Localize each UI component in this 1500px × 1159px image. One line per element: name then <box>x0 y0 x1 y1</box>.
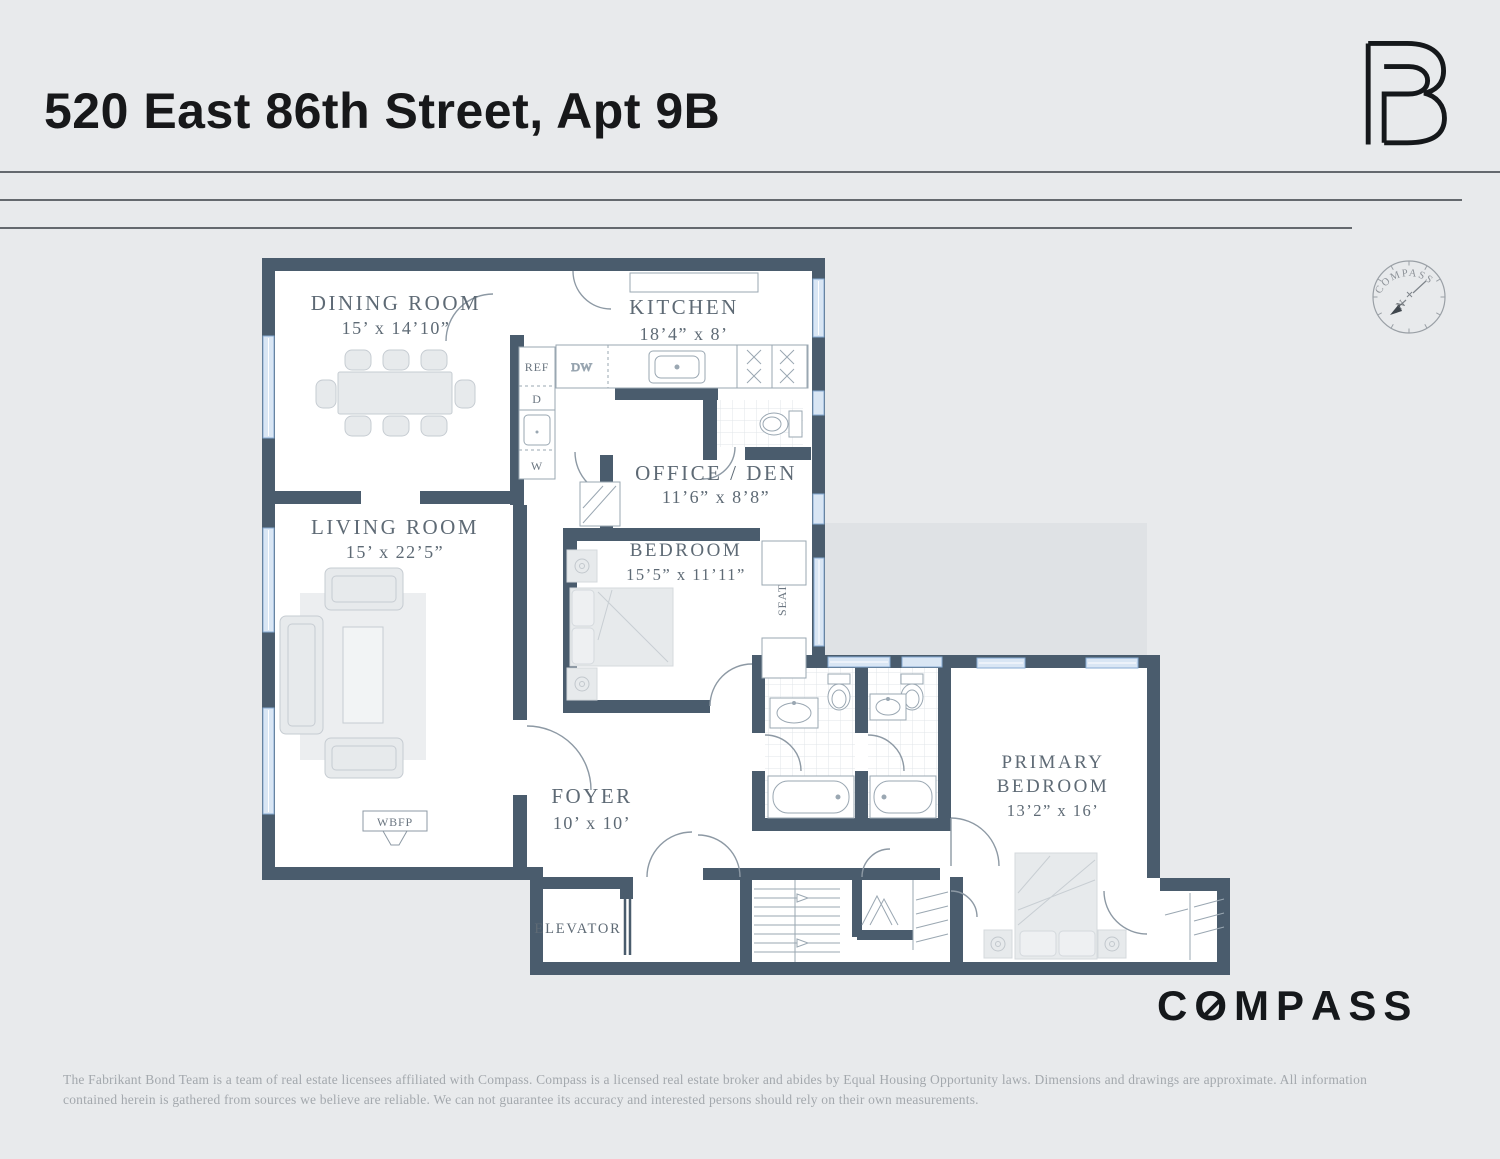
bedroom-label: BEDROOM <box>630 540 743 561</box>
header-rule-3 <box>0 227 1352 229</box>
bathtub <box>870 776 936 818</box>
dining-table <box>338 372 452 414</box>
compass-rose: N COMPASS <box>1364 252 1454 342</box>
adjacent-space <box>825 523 1147 655</box>
disclaimer-line-1: The Fabrikant Bond Team is a team of rea… <box>63 1070 1453 1090</box>
header-rule-2 <box>0 199 1462 201</box>
coffee-table <box>343 627 383 723</box>
washer-label: W <box>531 459 543 473</box>
elevator-label: ELEVATOR <box>534 921 621 937</box>
living-room-furniture <box>280 568 426 778</box>
header-rule-1 <box>0 171 1500 173</box>
bathtub <box>768 776 854 818</box>
living-room-dims: 15’ x 22’5” <box>346 542 444 562</box>
nightstand <box>1098 930 1126 958</box>
powder-room <box>760 411 802 437</box>
nightstand <box>567 550 597 582</box>
compass-wordmark: COMPASS <box>1157 982 1418 1030</box>
foyer-dims: 10’ x 10’ <box>553 813 631 833</box>
dw-label: DW <box>571 360 593 374</box>
rose-circle <box>1373 261 1445 333</box>
bedroom-dims: 15’5” x 11’11” <box>626 565 746 584</box>
disclaimer-line-2: contained herein is gathered from source… <box>63 1090 1453 1110</box>
kitchen-label: KITCHEN <box>629 295 739 319</box>
dining-room-label: DINING ROOM <box>311 291 481 315</box>
kitchen-dims: 18’4” x 8’ <box>640 324 729 344</box>
hall-closet <box>580 482 620 526</box>
stove <box>737 345 807 388</box>
floorplan-drawing: WBFP REF D W DW <box>240 244 1240 989</box>
rose-needle <box>1390 281 1426 315</box>
primary-bedroom-label-1: PRIMARY <box>1001 752 1104 773</box>
office-den-label: OFFICE / DEN <box>635 461 797 485</box>
ref-label: REF <box>525 360 549 374</box>
seat-label: SEAT <box>775 584 789 616</box>
fb-logo-inner <box>1384 67 1427 143</box>
nightstand <box>984 930 1012 958</box>
dryer-label: D <box>532 392 541 406</box>
living-room-label: LIVING ROOM <box>311 515 479 539</box>
wbfp-label: WBFP <box>377 815 413 829</box>
laundry-column: REF D W <box>519 347 555 479</box>
nightstand <box>567 668 597 700</box>
primary-bedroom-dims: 13’2” x 16’ <box>1007 801 1100 820</box>
disclaimer: The Fabrikant Bond Team is a team of rea… <box>63 1070 1453 1110</box>
office-den-dims: 11’6” x 8’8” <box>662 487 770 507</box>
dining-room-dims: 15’ x 14’10” <box>342 318 451 338</box>
primary-bedroom-label-2: BEDROOM <box>997 776 1110 797</box>
floorplan-page: 520 East 86th Street, Apt 9B N <box>0 0 1500 1159</box>
fabrikant-bond-logo <box>1354 36 1448 152</box>
foyer-label: FOYER <box>551 784 632 808</box>
page-title: 520 East 86th Street, Apt 9B <box>44 82 720 140</box>
